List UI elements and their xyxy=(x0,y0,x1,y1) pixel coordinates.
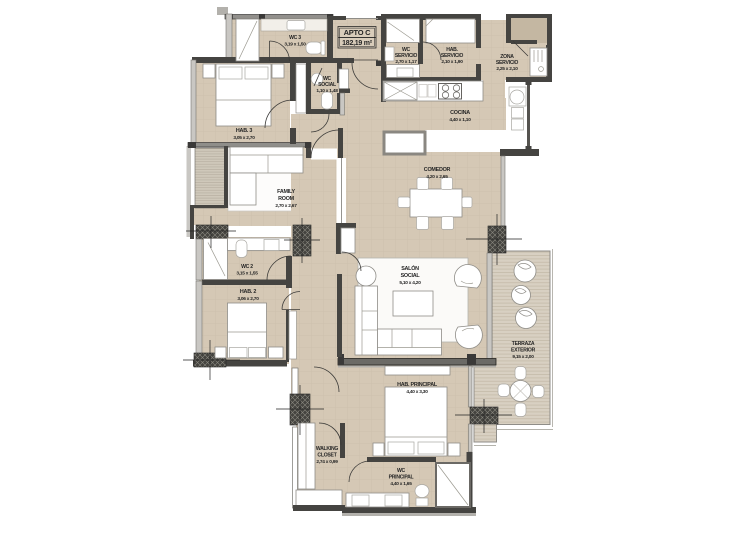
svg-text:ROOM: ROOM xyxy=(278,196,295,202)
svg-text:2,70 x 2,67: 2,70 x 2,67 xyxy=(275,203,297,209)
svg-text:3,15 x 1,55: 3,15 x 1,55 xyxy=(236,271,258,277)
svg-text:APTO C: APTO C xyxy=(344,28,372,37)
svg-text:FAMILY: FAMILY xyxy=(277,189,295,195)
svg-text:2,70 x 1,17: 2,70 x 1,17 xyxy=(395,59,417,65)
svg-text:3,06 x 2,70: 3,06 x 2,70 xyxy=(237,296,259,302)
svg-text:WC 3: WC 3 xyxy=(289,35,301,41)
svg-text:HAB. PRINCIPAL: HAB. PRINCIPAL xyxy=(397,382,438,388)
svg-text:COMEDOR: COMEDOR xyxy=(424,167,451,173)
svg-text:WC 2: WC 2 xyxy=(241,264,253,270)
svg-text:3,19 x 1,50: 3,19 x 1,50 xyxy=(284,42,306,48)
svg-text:TERRAZA: TERRAZA xyxy=(512,341,535,347)
svg-text:5,10 x 4,20: 5,10 x 4,20 xyxy=(399,280,421,286)
svg-text:PRINCIPAL: PRINCIPAL xyxy=(389,475,414,481)
svg-text:SERVICIO: SERVICIO xyxy=(441,53,464,59)
svg-text:WALKING: WALKING xyxy=(316,446,339,452)
svg-text:SERVICIO: SERVICIO xyxy=(395,53,418,59)
svg-text:2,10 x 1,90: 2,10 x 1,90 xyxy=(441,59,463,65)
svg-text:3,05 x 2,70: 3,05 x 2,70 xyxy=(233,135,255,141)
svg-text:SOCIAL: SOCIAL xyxy=(318,82,336,88)
svg-text:SERVICIO: SERVICIO xyxy=(496,60,519,66)
svg-text:CLOSET: CLOSET xyxy=(317,453,337,459)
svg-text:9,15 x 2,00: 9,15 x 2,00 xyxy=(512,354,534,360)
svg-text:4,40 x 1,65: 4,40 x 1,65 xyxy=(390,481,412,487)
svg-text:EXTERIOR: EXTERIOR xyxy=(511,348,536,354)
svg-text:182,19 m²: 182,19 m² xyxy=(342,40,373,47)
svg-text:HAB. 2: HAB. 2 xyxy=(240,289,256,295)
svg-text:4,20 x 2,65: 4,20 x 2,65 xyxy=(426,174,448,180)
svg-text:2,74 x 0,99: 2,74 x 0,99 xyxy=(316,459,338,465)
svg-text:SALÓN: SALÓN xyxy=(401,264,419,272)
svg-text:SOCIAL: SOCIAL xyxy=(401,273,421,279)
svg-text:1,10 x 1,48: 1,10 x 1,48 xyxy=(316,88,338,94)
svg-text:WC: WC xyxy=(397,468,406,474)
svg-text:4,40 x 1,10: 4,40 x 1,10 xyxy=(449,117,471,123)
svg-text:2,25 x 2,10: 2,25 x 2,10 xyxy=(496,66,518,72)
svg-text:4,40 x 3,30: 4,40 x 3,30 xyxy=(406,389,428,395)
svg-text:HAB. 3: HAB. 3 xyxy=(236,128,252,134)
svg-text:COCINA: COCINA xyxy=(450,110,470,116)
